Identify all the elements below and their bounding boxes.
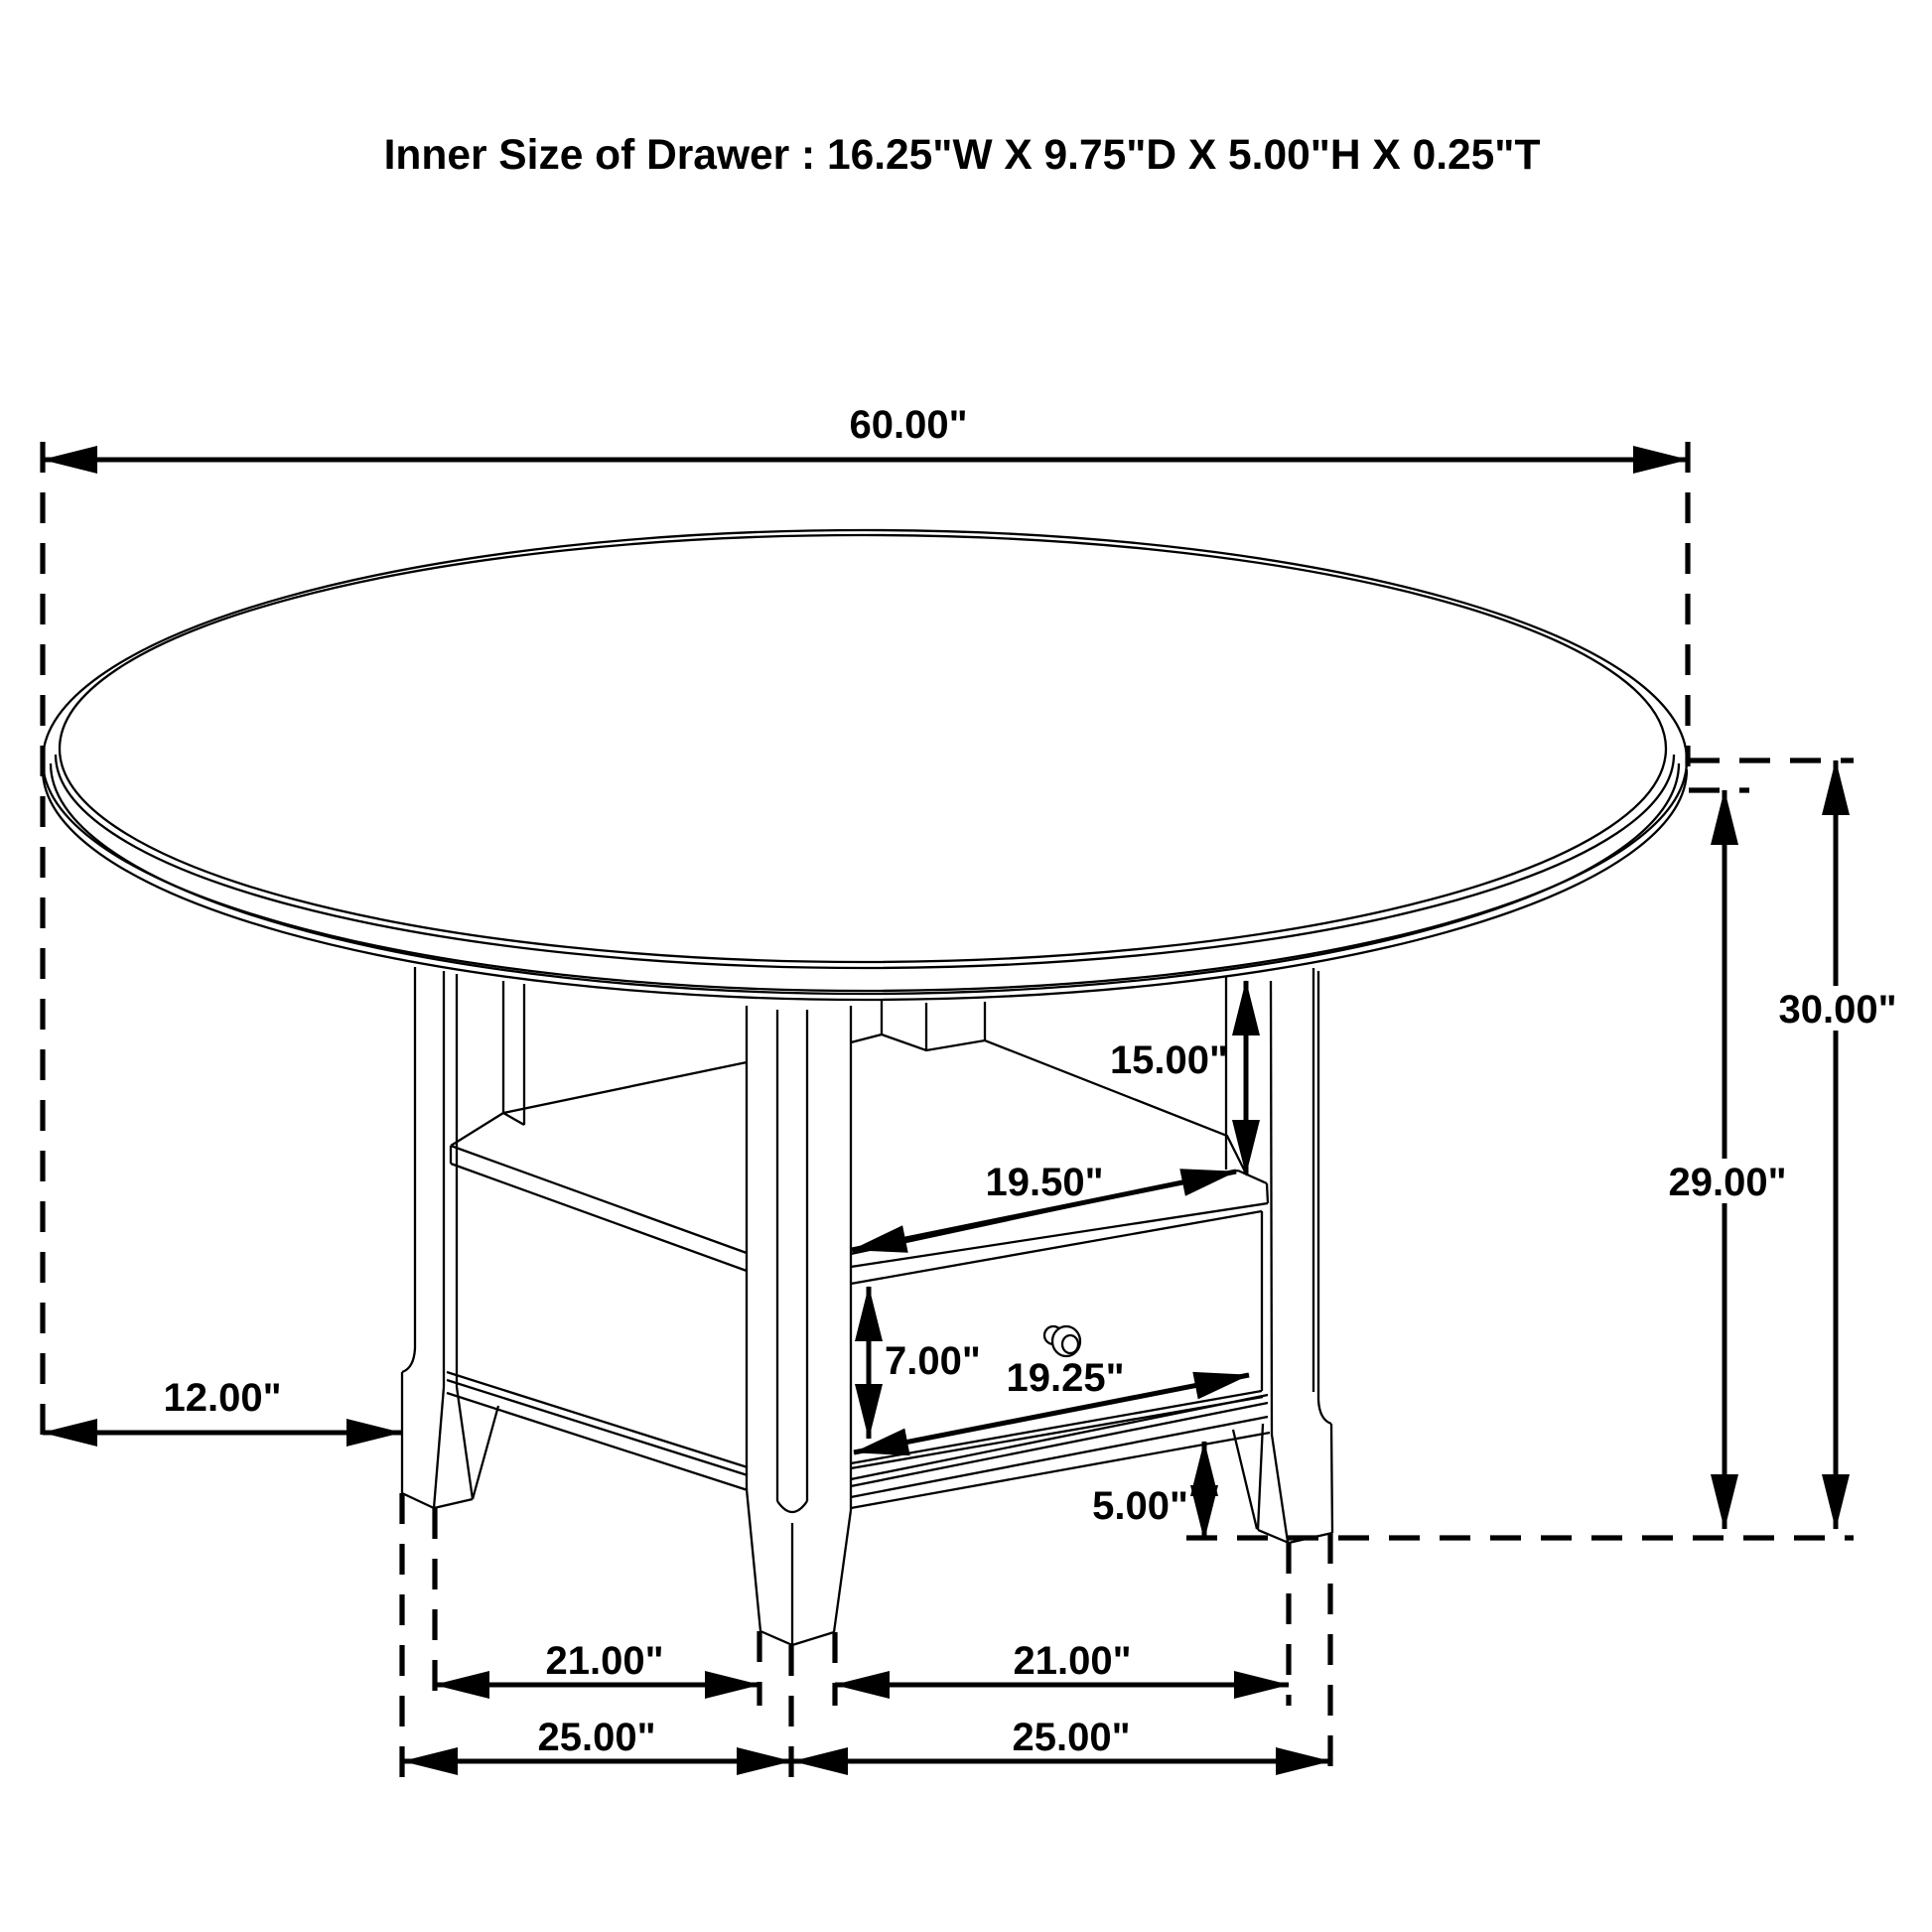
svg-text:21.00": 21.00"	[545, 1639, 663, 1683]
svg-text:7.00": 7.00"	[885, 1339, 981, 1383]
svg-text:15.00": 15.00"	[1110, 1038, 1228, 1082]
svg-text:12.00": 12.00"	[163, 1376, 281, 1420]
svg-text:60.00": 60.00"	[849, 403, 967, 447]
svg-text:Inner Size of Drawer : 16.25"W: Inner Size of Drawer : 16.25"W X 9.75"D …	[384, 132, 1541, 179]
svg-text:5.00": 5.00"	[1092, 1484, 1188, 1528]
svg-text:21.00": 21.00"	[1013, 1639, 1131, 1683]
svg-text:19.25": 19.25"	[1006, 1356, 1124, 1400]
svg-text:19.50": 19.50"	[985, 1161, 1103, 1204]
svg-text:25.00": 25.00"	[537, 1716, 655, 1759]
svg-text:29.00": 29.00"	[1668, 1161, 1786, 1204]
svg-text:25.00": 25.00"	[1012, 1716, 1130, 1759]
svg-text:30.00": 30.00"	[1778, 988, 1896, 1032]
